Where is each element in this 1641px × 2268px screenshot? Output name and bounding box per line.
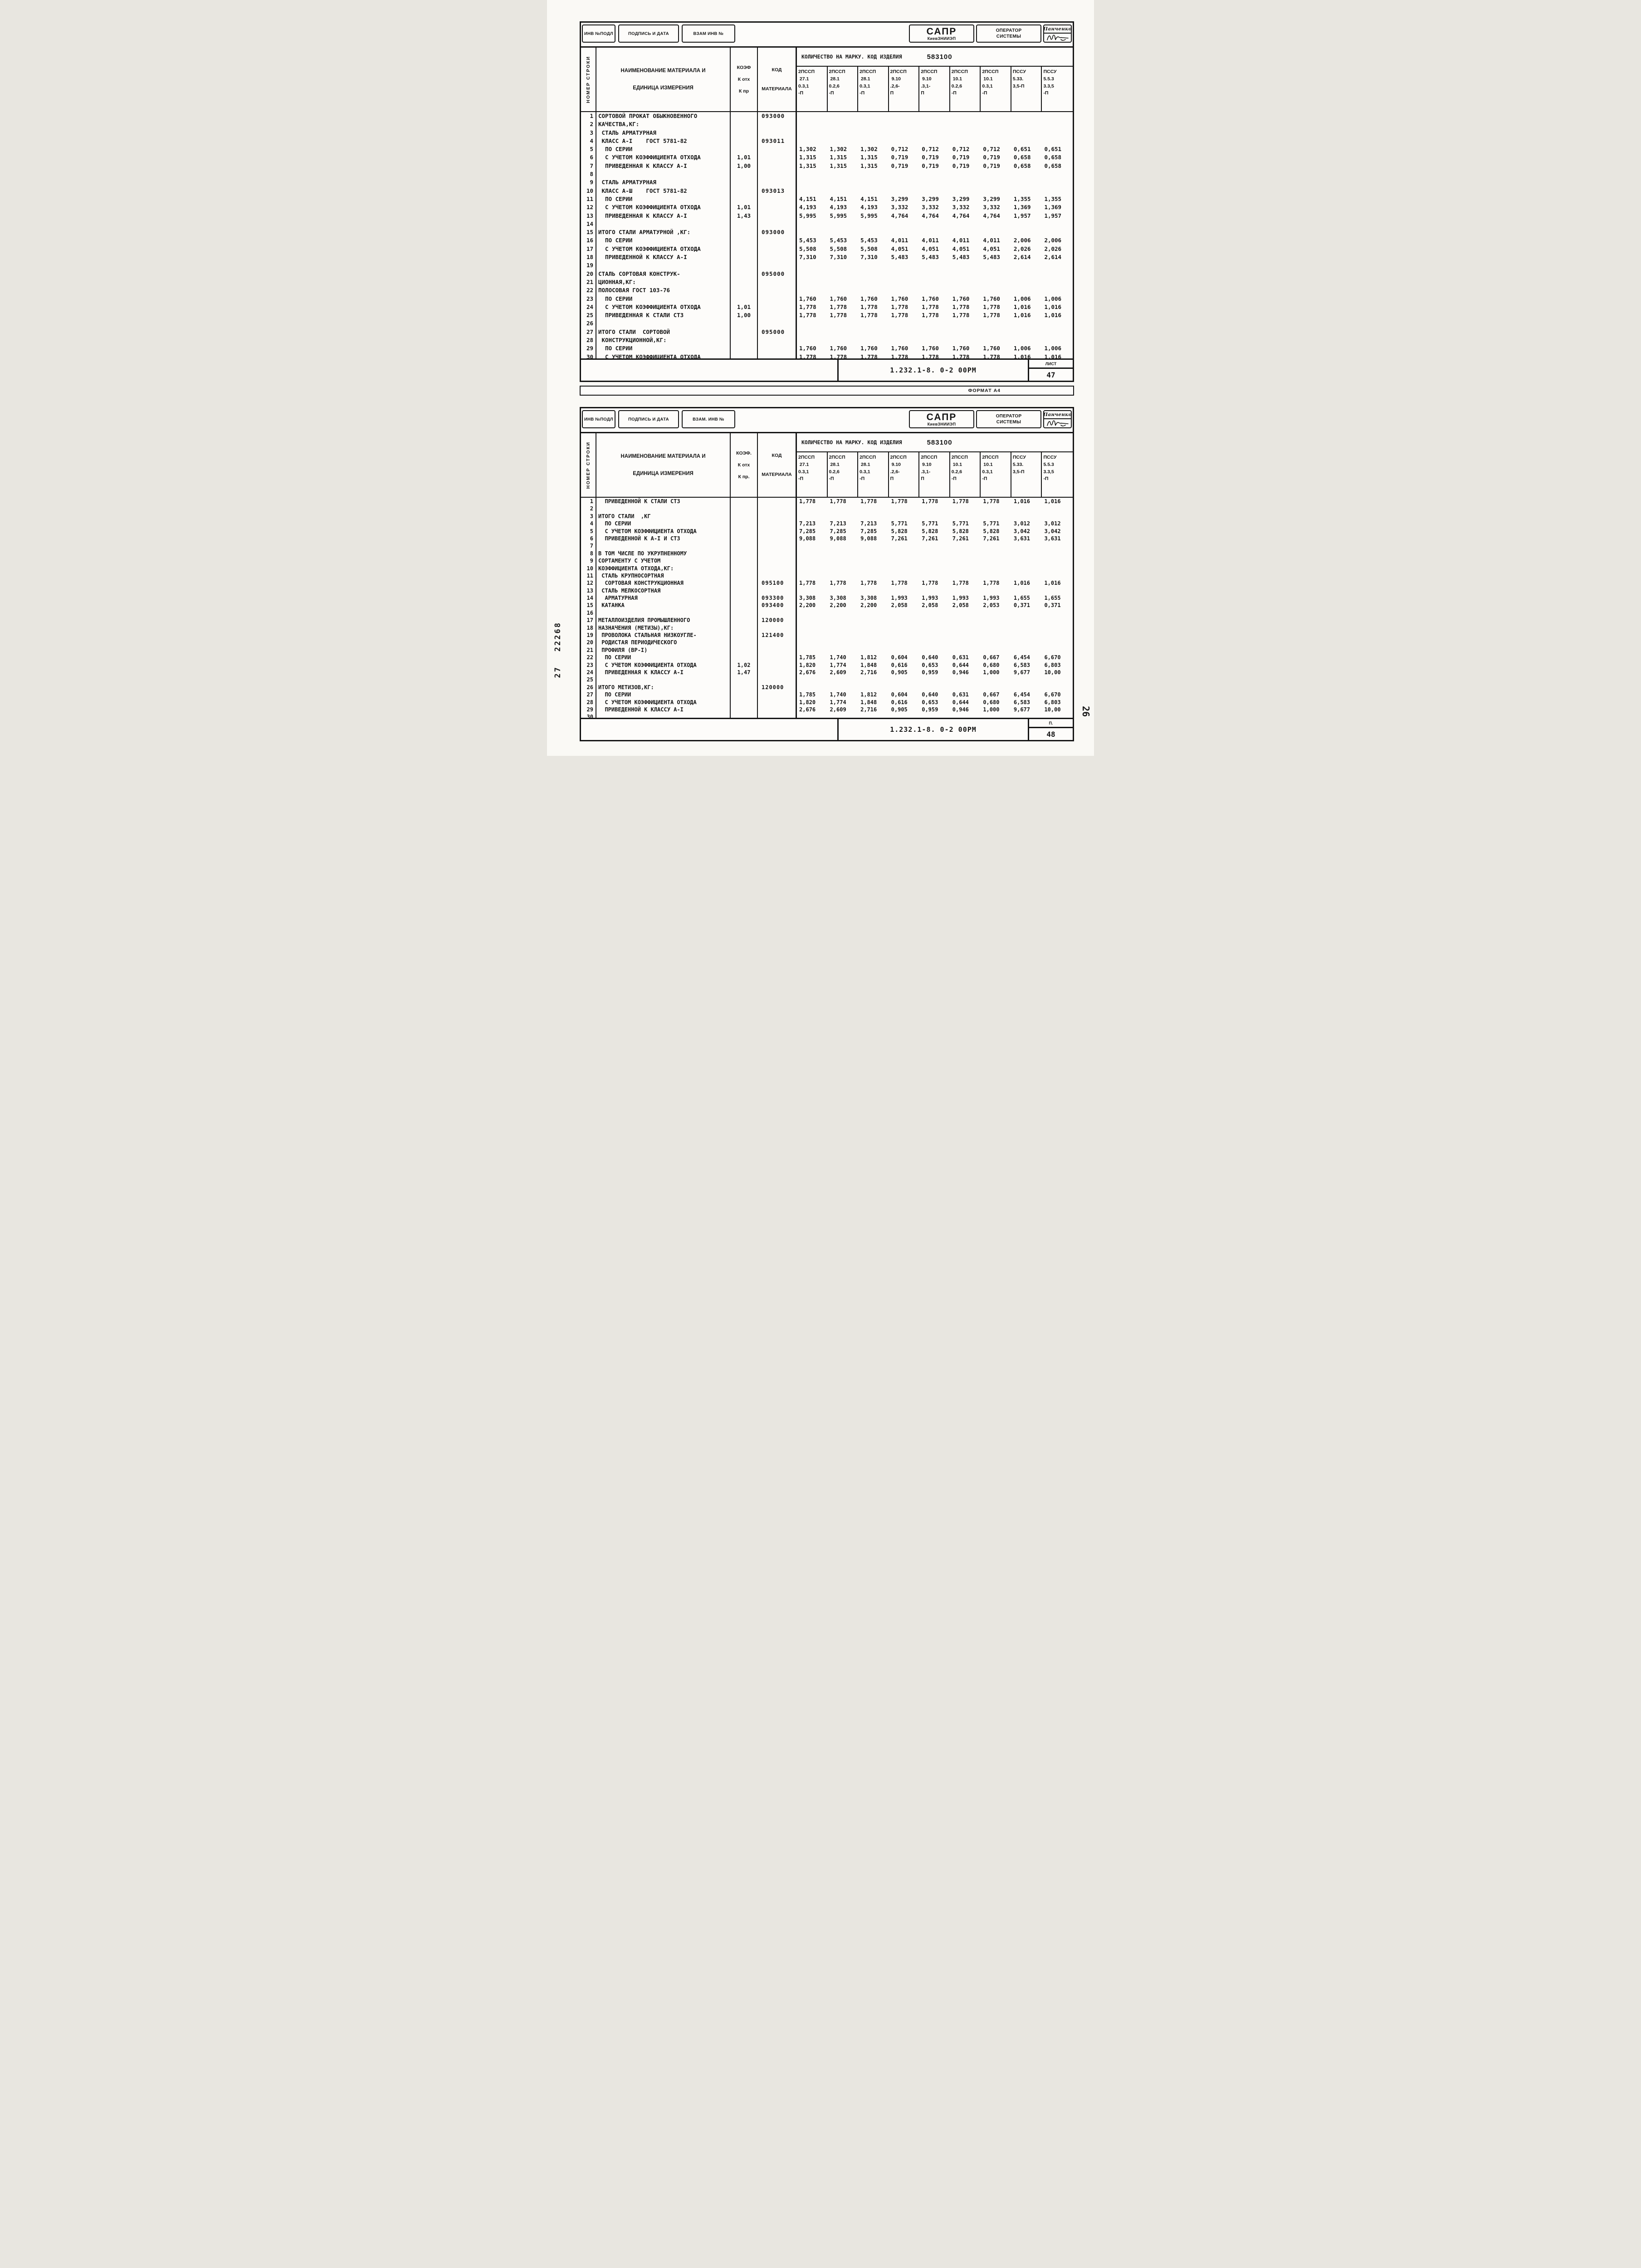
material-code: 093300 bbox=[758, 594, 797, 602]
row-number: 17 bbox=[581, 245, 596, 253]
qty-value bbox=[828, 557, 859, 564]
qty-value bbox=[950, 676, 981, 683]
qty-value bbox=[981, 713, 1011, 718]
qty-value: 10,00 bbox=[1042, 669, 1073, 676]
material-code bbox=[758, 336, 797, 344]
material-code bbox=[758, 513, 797, 520]
qty-value: 5,508 bbox=[858, 245, 889, 253]
qty-value: 1,778 bbox=[858, 579, 889, 587]
qty-value bbox=[858, 286, 889, 294]
row-number: 11 bbox=[581, 572, 596, 579]
qty-value: 1,778 bbox=[981, 498, 1011, 505]
qty-value bbox=[919, 639, 950, 646]
quantity-column-header: 2ПССП 28.10.2,6-П bbox=[828, 67, 859, 111]
qty-value bbox=[1042, 112, 1073, 120]
qty-value bbox=[828, 137, 859, 145]
qty-value bbox=[797, 270, 828, 278]
qty-value bbox=[828, 572, 859, 579]
row-number: 27 bbox=[581, 328, 596, 336]
qty-value: 5,828 bbox=[919, 528, 950, 535]
qty-value: 1,302 bbox=[858, 145, 889, 153]
qty-value: 2,058 bbox=[889, 602, 920, 609]
qty-value: 0,651 bbox=[1011, 145, 1042, 153]
org-subname: КиевЗНИИЭП bbox=[928, 37, 956, 41]
quantity-column-header: 2ПССП 28.10.3,1-П bbox=[858, 452, 889, 497]
qty-value bbox=[1042, 228, 1073, 236]
qty-value: 2,058 bbox=[919, 602, 950, 609]
qty-value bbox=[981, 647, 1011, 654]
qty-value: 1,993 bbox=[889, 594, 920, 602]
qty-value bbox=[797, 550, 828, 557]
qty-value: 5,508 bbox=[797, 245, 828, 253]
material-code bbox=[758, 319, 797, 328]
qty-value: 4,764 bbox=[981, 212, 1011, 220]
row-number: 5 bbox=[581, 145, 596, 153]
material-name: СОРТАМЕНТУ С УЧЕТОМ bbox=[596, 557, 731, 564]
material-code: 095000 bbox=[758, 328, 797, 336]
qty-value: 1,785 bbox=[797, 691, 828, 698]
material-name bbox=[596, 170, 731, 178]
qty-value bbox=[919, 278, 950, 286]
qty-value: 1,016 bbox=[1042, 303, 1073, 311]
coef-value: 1,00 bbox=[731, 162, 758, 170]
qty-value: 3,299 bbox=[950, 195, 981, 203]
coef-value bbox=[731, 112, 758, 120]
qty-value: 1,760 bbox=[858, 295, 889, 303]
qty-value bbox=[797, 178, 828, 186]
qty-value bbox=[828, 624, 859, 632]
qty-value: 4,011 bbox=[889, 236, 920, 245]
qty-value bbox=[919, 137, 950, 145]
material-code bbox=[758, 170, 797, 178]
qty-value: 1,778 bbox=[889, 353, 920, 358]
qty-value: 0,719 bbox=[919, 162, 950, 170]
qty-value: 1,016 bbox=[1011, 353, 1042, 358]
qty-value: 5,828 bbox=[950, 528, 981, 535]
qty-value bbox=[828, 513, 859, 520]
qty-value: 5,995 bbox=[858, 212, 889, 220]
stamp-sign-date: ПОДПИСЬ И ДАТА bbox=[618, 410, 679, 428]
qty-value bbox=[981, 617, 1011, 624]
qty-value bbox=[889, 676, 920, 683]
qty-value: 1,778 bbox=[797, 303, 828, 311]
qty-value bbox=[1042, 286, 1073, 294]
qty-value: 1,655 bbox=[1042, 594, 1073, 602]
quantity-title-strip: КОЛИЧЕСТВО НА МАРКУ. КОД ИЗДЕЛИЯ 583100 bbox=[797, 48, 1073, 67]
qty-value bbox=[1042, 565, 1073, 572]
coef-value bbox=[731, 344, 758, 353]
material-name: АРМАТУРНАЯ bbox=[596, 594, 731, 602]
row-number: 11 bbox=[581, 195, 596, 203]
qty-value: 4,764 bbox=[950, 212, 981, 220]
qty-value bbox=[950, 513, 981, 520]
qty-value bbox=[1011, 609, 1042, 617]
qty-value bbox=[919, 129, 950, 137]
operator-label-line2: СИСТЕМЫ bbox=[996, 419, 1021, 425]
qty-value: 1,760 bbox=[797, 344, 828, 353]
material-code bbox=[758, 535, 797, 542]
qty-value bbox=[981, 112, 1011, 120]
qty-value bbox=[889, 565, 920, 572]
row-number: 14 bbox=[581, 594, 596, 602]
org-name: САПР bbox=[927, 412, 957, 422]
quantity-header-block: КОЛИЧЕСТВО НА МАРКУ. КОД ИЗДЕЛИЯ 583100 … bbox=[797, 433, 1073, 497]
qty-value bbox=[828, 129, 859, 137]
qty-value bbox=[950, 617, 981, 624]
coef-value bbox=[731, 609, 758, 617]
qty-value: 1,302 bbox=[828, 145, 859, 153]
coef-value bbox=[731, 353, 758, 358]
qty-value: 0,616 bbox=[889, 699, 920, 706]
material-code bbox=[758, 713, 797, 718]
qty-value: 1,016 bbox=[1042, 353, 1073, 358]
qty-value bbox=[950, 624, 981, 632]
qty-value bbox=[858, 328, 889, 336]
qty-value bbox=[797, 286, 828, 294]
material-name-header-line2: ЕДИНИЦА ИЗМЕРЕНИЯ bbox=[633, 85, 694, 91]
qty-value bbox=[919, 220, 950, 228]
coef-value bbox=[731, 236, 758, 245]
qty-value: 1,778 bbox=[828, 498, 859, 505]
qty-value: 4,764 bbox=[889, 212, 920, 220]
qty-value bbox=[1011, 228, 1042, 236]
material-code bbox=[758, 624, 797, 632]
material-name: С УЧЕТОМ КОЭФФИЦИЕНТА ОТХОДА bbox=[596, 303, 731, 311]
stamp-label: ПОДПИСЬ И ДАТА bbox=[628, 417, 669, 422]
qty-value bbox=[919, 609, 950, 617]
footer-empty-cell bbox=[581, 719, 837, 740]
qty-value: 1,778 bbox=[919, 303, 950, 311]
qty-value bbox=[1011, 572, 1042, 579]
qty-value: 1,369 bbox=[1011, 203, 1042, 211]
qty-value bbox=[950, 572, 981, 579]
qty-value bbox=[828, 187, 859, 195]
qty-value bbox=[797, 624, 828, 632]
qty-value: 1,740 bbox=[828, 691, 859, 698]
qty-value bbox=[950, 178, 981, 186]
coef-value bbox=[731, 278, 758, 286]
material-name-header: НАИМЕНОВАНИЕ МАТЕРИАЛА И ЕДИНИЦА ИЗМЕРЕН… bbox=[596, 48, 731, 111]
sheet-number-block: П. 48 bbox=[1028, 719, 1073, 740]
qty-value bbox=[1011, 617, 1042, 624]
qty-value bbox=[797, 129, 828, 137]
qty-value bbox=[981, 550, 1011, 557]
material-name bbox=[596, 676, 731, 683]
qty-value: 2,609 bbox=[828, 669, 859, 676]
material-code bbox=[758, 661, 797, 669]
quantity-column-header: 2ПССП 28.10.3,1-П bbox=[858, 67, 889, 111]
qty-value bbox=[1011, 286, 1042, 294]
row-number: 29 bbox=[581, 344, 596, 353]
material-name: С УЧЕТОМ КОЭФФИЦИЕНТА ОТХОДА bbox=[596, 528, 731, 535]
qty-value bbox=[950, 278, 981, 286]
qty-value: 0,616 bbox=[889, 661, 920, 669]
material-name: КАЧЕСТВА,КГ: bbox=[596, 120, 731, 128]
qty-value bbox=[1042, 624, 1073, 632]
qty-value: 2,609 bbox=[828, 706, 859, 713]
material-code bbox=[758, 195, 797, 203]
qty-value: 5,453 bbox=[797, 236, 828, 245]
signature-scrawl-icon bbox=[1046, 419, 1070, 427]
material-code bbox=[758, 253, 797, 261]
material-name: ИТОГО СТАЛИ АРМАТУРНОЙ ,КГ: bbox=[596, 228, 731, 236]
qty-value: 0,905 bbox=[889, 706, 920, 713]
qty-value: 2,006 bbox=[1011, 236, 1042, 245]
qty-value bbox=[858, 112, 889, 120]
material-name: ПРИВЕДЕННОЙ К КЛАССУ А-I bbox=[596, 706, 731, 713]
qty-value: 3,332 bbox=[981, 203, 1011, 211]
qty-value: 3,332 bbox=[950, 203, 981, 211]
quantity-column-header: 2ПССП 27.10.3,1-П bbox=[797, 67, 828, 111]
material-name-header-line2: ЕДИНИЦА ИЗМЕРЕНИЯ bbox=[633, 471, 694, 476]
qty-value bbox=[858, 647, 889, 654]
qty-value: 1,774 bbox=[828, 661, 859, 669]
stamp-label: ВЗАМ ИНВ № bbox=[694, 31, 724, 36]
coef-value bbox=[731, 228, 758, 236]
qty-value bbox=[1042, 542, 1073, 549]
quantity-column-header: 2ПССП 10.10.2,6-П bbox=[950, 67, 981, 111]
qty-value: 4,151 bbox=[797, 195, 828, 203]
qty-value: 1,848 bbox=[858, 661, 889, 669]
qty-value bbox=[858, 319, 889, 328]
stamp-label: ПОДПИСЬ И ДАТА bbox=[628, 31, 669, 36]
qty-value bbox=[889, 286, 920, 294]
qty-value: 9,088 bbox=[828, 535, 859, 542]
qty-value: 2,716 bbox=[858, 706, 889, 713]
qty-value bbox=[1011, 542, 1042, 549]
qty-value bbox=[828, 112, 859, 120]
qty-value: 1,302 bbox=[797, 145, 828, 153]
qty-value bbox=[981, 587, 1011, 594]
material-code bbox=[758, 505, 797, 512]
row-number: 25 bbox=[581, 311, 596, 319]
stamp-inv-podl: ИНВ №ПОДЛ bbox=[582, 24, 615, 43]
qty-value bbox=[981, 328, 1011, 336]
product-code: 583100 bbox=[927, 53, 952, 61]
qty-value bbox=[828, 639, 859, 646]
material-name: ПОЛОСОВАЯ ГОСТ 103-76 bbox=[596, 286, 731, 294]
coef-value: 1,01 bbox=[731, 303, 758, 311]
material-code bbox=[758, 706, 797, 713]
qty-value: 7,285 bbox=[828, 528, 859, 535]
qty-value: 0,719 bbox=[889, 162, 920, 170]
row-number: 15 bbox=[581, 228, 596, 236]
qty-value: 1,848 bbox=[858, 699, 889, 706]
row-number-header: НОМЕР СТРОКИ bbox=[581, 433, 596, 497]
coef-value bbox=[731, 550, 758, 557]
qty-value bbox=[919, 647, 950, 654]
qty-value: 1,760 bbox=[919, 295, 950, 303]
materials-table: НОМЕР СТРОКИ НАИМЕНОВАНИЕ МАТЕРИАЛА И ЕД… bbox=[581, 46, 1073, 360]
qty-value: 1,993 bbox=[950, 594, 981, 602]
row-number: 24 bbox=[581, 303, 596, 311]
qty-value: 1,778 bbox=[950, 303, 981, 311]
row-number: 20 bbox=[581, 639, 596, 646]
format-strip: ФОРМАТ А4 bbox=[580, 386, 1074, 396]
qty-value: 1,006 bbox=[1011, 295, 1042, 303]
qty-value: 4,193 bbox=[797, 203, 828, 211]
qty-value bbox=[950, 220, 981, 228]
qty-value: 1,000 bbox=[981, 669, 1011, 676]
qty-value bbox=[981, 513, 1011, 520]
qty-value bbox=[889, 120, 920, 128]
qty-value bbox=[950, 565, 981, 572]
quantity-title-strip: КОЛИЧЕСТВО НА МАРКУ. КОД ИЗДЕЛИЯ 583100 bbox=[797, 433, 1073, 452]
material-name: КЛАСС А-I ГОСТ 5781-82 bbox=[596, 137, 731, 145]
operator-signature-stamp: Панченко bbox=[1043, 24, 1072, 43]
material-code bbox=[758, 212, 797, 220]
coef-value bbox=[731, 129, 758, 137]
row-number: 10 bbox=[581, 565, 596, 572]
scanned-specification-page: ИНВ №ПОДЛ ПОДПИСЬ И ДАТА ВЗАМ ИНВ № САПР… bbox=[547, 0, 1094, 756]
material-code bbox=[758, 676, 797, 683]
qty-value bbox=[981, 178, 1011, 186]
code-header-line2: МАТЕРИАЛА bbox=[762, 86, 791, 92]
qty-value bbox=[858, 187, 889, 195]
coef-value bbox=[731, 632, 758, 639]
qty-value bbox=[889, 617, 920, 624]
qty-value bbox=[889, 572, 920, 579]
material-code: 093000 bbox=[758, 228, 797, 236]
qty-value: 0,712 bbox=[950, 145, 981, 153]
qty-value: 0,667 bbox=[981, 691, 1011, 698]
qty-value bbox=[950, 270, 981, 278]
material-name: СТАЛЬ АРМАТУРНАЯ bbox=[596, 129, 731, 137]
coef-value bbox=[731, 498, 758, 505]
qty-value: 1,760 bbox=[950, 344, 981, 353]
stamp-vzam-inv: ВЗАМ ИНВ № bbox=[682, 24, 735, 43]
qty-value: 1,778 bbox=[797, 311, 828, 319]
coef-value bbox=[731, 572, 758, 579]
material-name: КОНСТРУКЦИОННОЙ,КГ: bbox=[596, 336, 731, 344]
title-stamp-band: ИНВ №ПОДЛ ПОДПИСЬ И ДАТА ВЗАМ. ИНВ № САП… bbox=[581, 408, 1073, 432]
material-name: СТАЛЬ КРУПНОСОРТНАЯ bbox=[596, 572, 731, 579]
qty-value bbox=[858, 505, 889, 512]
qty-value: 6,670 bbox=[1042, 654, 1073, 661]
qty-value bbox=[1011, 684, 1042, 691]
qty-value bbox=[1042, 684, 1073, 691]
qty-value: 0,905 bbox=[889, 669, 920, 676]
material-code bbox=[758, 145, 797, 153]
coef-value bbox=[731, 328, 758, 336]
qty-value bbox=[858, 513, 889, 520]
material-name: ПО СЕРИИ bbox=[596, 295, 731, 303]
qty-value: 2,058 bbox=[950, 602, 981, 609]
coef-value bbox=[731, 187, 758, 195]
qty-value: 0,604 bbox=[889, 691, 920, 698]
qty-value bbox=[889, 639, 920, 646]
qty-value: 0,959 bbox=[919, 706, 950, 713]
qty-value bbox=[797, 713, 828, 718]
qty-value bbox=[828, 286, 859, 294]
qty-value bbox=[981, 137, 1011, 145]
qty-value: 1,760 bbox=[919, 344, 950, 353]
coef-value bbox=[731, 624, 758, 632]
row-number: 13 bbox=[581, 587, 596, 594]
qty-value: 1,957 bbox=[1011, 212, 1042, 220]
qty-value: 4,011 bbox=[919, 236, 950, 245]
code-header-line2: МАТЕРИАЛА bbox=[762, 472, 791, 477]
material-name-header-line1: НАИМЕНОВАНИЕ МАТЕРИАЛА И bbox=[620, 454, 705, 459]
qty-value: 1,778 bbox=[950, 311, 981, 319]
qty-value: 9,088 bbox=[858, 535, 889, 542]
row-number: 12 bbox=[581, 203, 596, 211]
qty-value bbox=[950, 319, 981, 328]
qty-value: 5,828 bbox=[981, 528, 1011, 535]
qty-value: 2,026 bbox=[1011, 245, 1042, 253]
qty-value: 7,310 bbox=[858, 253, 889, 261]
material-name: ПРИВЕДЕННОЙ К А-I И СТ3 bbox=[596, 535, 731, 542]
sheet-number: 48 bbox=[1029, 728, 1073, 740]
row-number: 28 bbox=[581, 699, 596, 706]
row-number: 7 bbox=[581, 542, 596, 549]
qty-value bbox=[889, 336, 920, 344]
material-name: ПРИВЕДЕННОЙ К КЛАССУ А-I bbox=[596, 253, 731, 261]
material-name bbox=[596, 542, 731, 549]
qty-value bbox=[1011, 137, 1042, 145]
material-code bbox=[758, 236, 797, 245]
material-code bbox=[758, 178, 797, 186]
qty-value bbox=[797, 542, 828, 549]
qty-value bbox=[889, 647, 920, 654]
qty-value: 4,193 bbox=[858, 203, 889, 211]
qty-value bbox=[981, 684, 1011, 691]
stamp-label: ВЗАМ. ИНВ № bbox=[693, 417, 724, 422]
qty-value bbox=[828, 228, 859, 236]
qty-value bbox=[889, 713, 920, 718]
qty-value bbox=[1042, 639, 1073, 646]
qty-value: 4,764 bbox=[919, 212, 950, 220]
qty-value: 0,712 bbox=[889, 145, 920, 153]
qty-value: 7,285 bbox=[858, 528, 889, 535]
qty-value: 0,719 bbox=[950, 162, 981, 170]
qty-value bbox=[858, 270, 889, 278]
qty-value bbox=[858, 137, 889, 145]
qty-value: 1,778 bbox=[889, 498, 920, 505]
qty-value bbox=[981, 319, 1011, 328]
quantity-column-header: 2ПССП 10.10.3,1-П bbox=[981, 452, 1011, 497]
row-number: 21 bbox=[581, 647, 596, 654]
quantity-column-header: 2ПССП 27.10.3,1-П bbox=[797, 452, 828, 497]
qty-value: 1,778 bbox=[919, 579, 950, 587]
material-code bbox=[758, 153, 797, 162]
qty-value: 0,658 bbox=[1042, 153, 1073, 162]
material-name-header-line1: НАИМЕНОВАНИЕ МАТЕРИАЛА И bbox=[620, 68, 705, 73]
qty-value: 1,016 bbox=[1011, 498, 1042, 505]
qty-value bbox=[950, 228, 981, 236]
qty-value bbox=[981, 120, 1011, 128]
coef-value bbox=[731, 513, 758, 520]
qty-value bbox=[981, 639, 1011, 646]
qty-value: 7,213 bbox=[828, 520, 859, 527]
qty-value bbox=[797, 639, 828, 646]
coef-value bbox=[731, 706, 758, 713]
qty-value bbox=[889, 228, 920, 236]
operator-label-line1: ОПЕРАТОР bbox=[996, 28, 1022, 34]
table-header: НОМЕР СТРОКИ НАИМЕНОВАНИЕ МАТЕРИАЛА И ЕД… bbox=[581, 433, 1073, 498]
row-number: 26 bbox=[581, 319, 596, 328]
material-name: ИТОГО СТАЛИ ,КГ bbox=[596, 513, 731, 520]
qty-value bbox=[797, 557, 828, 564]
qty-value: 1,778 bbox=[919, 353, 950, 358]
qty-value: 1,760 bbox=[828, 295, 859, 303]
qty-value bbox=[828, 684, 859, 691]
material-code bbox=[758, 542, 797, 549]
material-name: СТАЛЬ СОРТОВАЯ КОНСТРУК- bbox=[596, 270, 731, 278]
row-number: 30 bbox=[581, 713, 596, 718]
qty-value bbox=[1042, 587, 1073, 594]
stamp-label: ИНВ №ПОДЛ bbox=[584, 31, 613, 36]
